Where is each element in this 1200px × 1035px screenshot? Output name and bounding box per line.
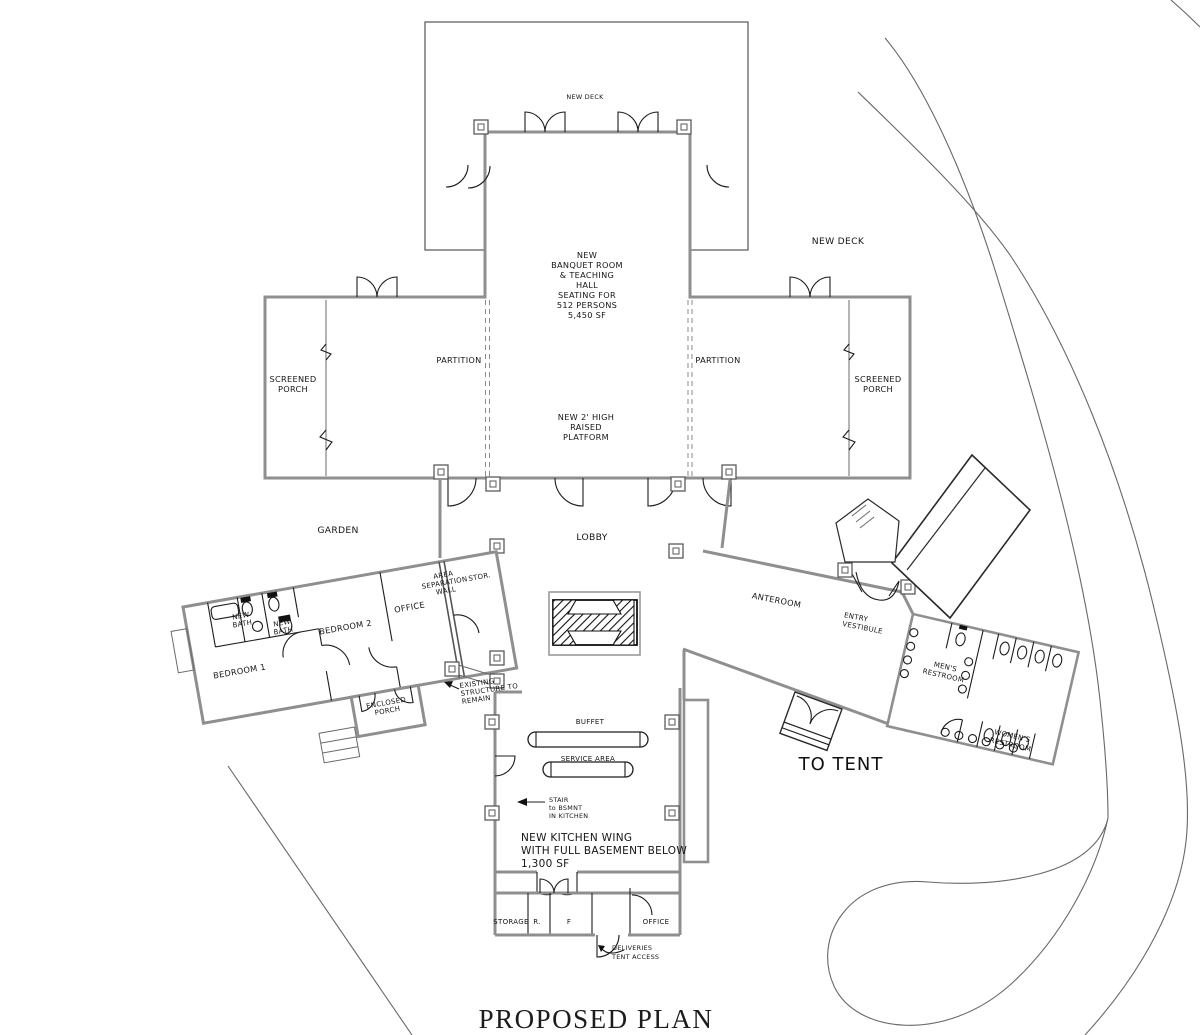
lobby-medallion (549, 592, 640, 655)
svg-text:TENT ACCESS: TENT ACCESS (611, 953, 659, 961)
label-kitchen-office: OFFICE (643, 918, 670, 926)
svg-text:PORCH: PORCH (278, 384, 308, 394)
label-to-tent: TO TENT (798, 754, 884, 775)
svg-text:PLATFORM: PLATFORM (563, 432, 609, 442)
svg-text:PORCH: PORCH (863, 384, 893, 394)
label-stair: STAIR to BSMNT IN KITCHEN (549, 796, 588, 820)
svg-text:BANQUET ROOM: BANQUET ROOM (551, 260, 623, 270)
svg-text:to BSMNT: to BSMNT (549, 804, 582, 812)
svg-text:IN KITCHEN: IN KITCHEN (549, 812, 588, 820)
label-existing-structure: EXISTING STRUCTURE TO REMAIN (459, 674, 520, 706)
proposed-plan-drawing: NEW DECK NEW DECK NEW BANQUET ROOM & TEA… (0, 0, 1200, 1035)
svg-text:WITH FULL BASEMENT BELOW: WITH FULL BASEMENT BELOW (521, 845, 687, 857)
label-buffet: BUFFET (576, 718, 605, 726)
tent-porch (780, 692, 842, 750)
svg-text:HALL: HALL (576, 280, 598, 290)
label-garden: GARDEN (317, 525, 358, 536)
label-lobby: LOBBY (576, 532, 607, 543)
kitchen-wing (485, 650, 708, 957)
svg-text:SCREENED: SCREENED (270, 374, 317, 384)
label-partition-right: PARTITION (695, 355, 740, 365)
svg-text:RAISED: RAISED (570, 422, 602, 432)
svg-text:STAIR: STAIR (549, 796, 569, 804)
restrooms (887, 614, 1079, 764)
label-deck-right: NEW DECK (812, 236, 865, 247)
svg-text:1,300 SF: 1,300 SF (521, 858, 570, 870)
svg-text:SEATING FOR: SEATING FOR (558, 290, 616, 300)
label-kitchen-wing: NEW KITCHEN WING WITH FULL BASEMENT BELO… (521, 832, 687, 870)
svg-text:NEW KITCHEN WING: NEW KITCHEN WING (521, 832, 632, 844)
site-curves (228, 0, 1200, 1035)
svg-text:NEW: NEW (577, 250, 597, 260)
drawing-title: PROPOSED PLAN (479, 1004, 714, 1034)
label-freezer: F (567, 918, 571, 926)
label-deck-top: NEW DECK (566, 93, 604, 101)
svg-text:DELIVERIES: DELIVERIES (612, 944, 652, 952)
label-partition-left: PARTITION (436, 355, 481, 365)
floor-plan-svg: NEW DECK NEW DECK NEW BANQUET ROOM & TEA… (0, 0, 1200, 1035)
label-storage: STORAGE (493, 918, 528, 926)
label-anteroom: ANTEROOM (751, 590, 802, 609)
label-refrigerator: R. (533, 918, 540, 926)
label-entry-vestibule: ENTRY VESTIBULE (842, 611, 885, 636)
label-service-area: SERVICE AREA (561, 755, 615, 763)
svg-text:SCREENED: SCREENED (855, 374, 902, 384)
label-deliveries: DELIVERIES TENT ACCESS (611, 944, 659, 961)
svg-text:5,450 SF: 5,450 SF (568, 310, 606, 320)
svg-text:NEW 2' HIGH: NEW 2' HIGH (558, 412, 614, 422)
svg-text:512 PERSONS: 512 PERSONS (557, 300, 617, 310)
svg-text:& TEACHING: & TEACHING (560, 270, 614, 280)
